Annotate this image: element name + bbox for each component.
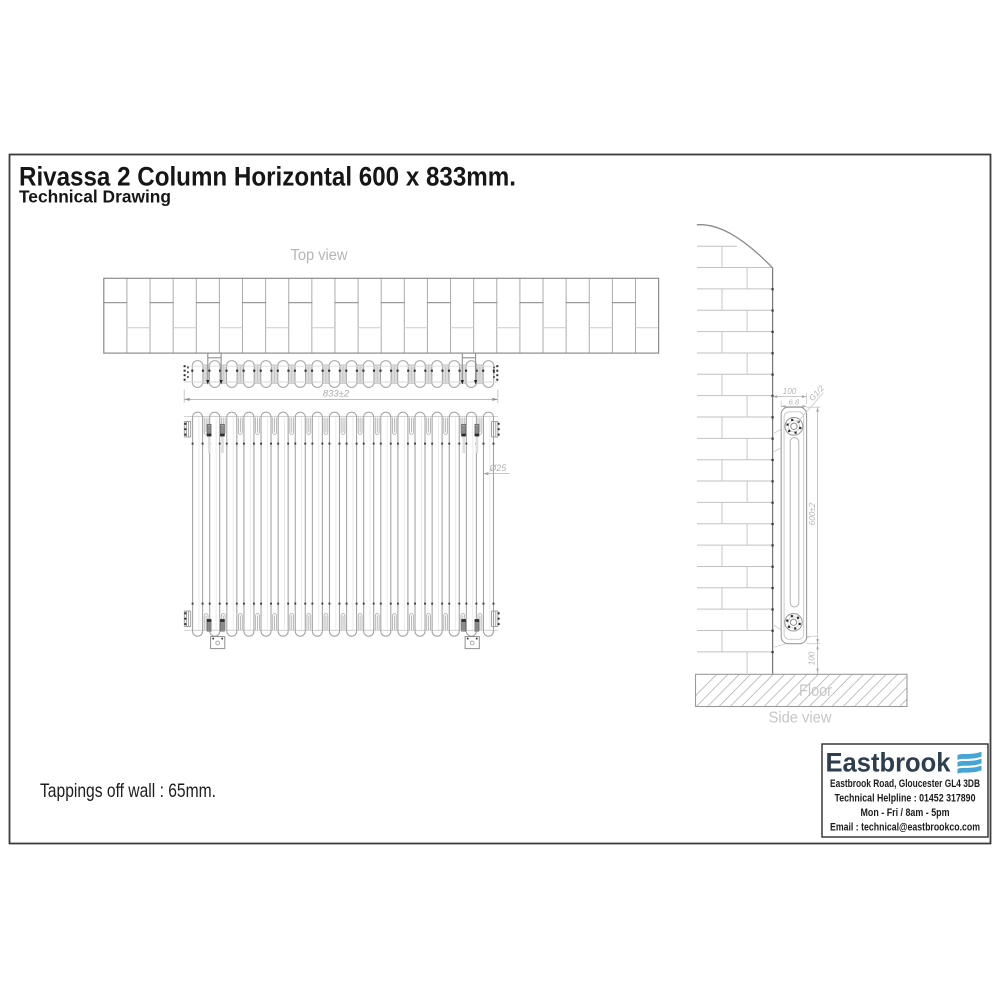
svg-text:Mon - Fri / 8am - 5pm: Mon - Fri / 8am - 5pm (861, 807, 950, 819)
svg-text:Eastbrook Road, Gloucester GL4: Eastbrook Road, Gloucester GL4 3DB (830, 778, 980, 790)
svg-text:600±2: 600±2 (808, 502, 817, 525)
svg-text:Technical Drawing: Technical Drawing (19, 187, 171, 207)
svg-text:6.8: 6.8 (789, 397, 800, 406)
svg-text:Ø25: Ø25 (489, 463, 507, 473)
svg-text:Eastbrook: Eastbrook (826, 748, 952, 778)
svg-text:100: 100 (783, 387, 797, 396)
svg-text:Side view: Side view (769, 710, 833, 727)
svg-text:Technical Helpline : 01452 317: Technical Helpline : 01452 317890 (835, 793, 976, 805)
svg-text:100: 100 (808, 651, 817, 665)
svg-text:833±2: 833±2 (323, 389, 350, 400)
svg-text:Email : technical@eastbrookco.: Email : technical@eastbrookco.com (830, 822, 980, 834)
svg-text:Tappings off wall : 65mm.: Tappings off wall : 65mm. (40, 780, 216, 802)
svg-text:Floor: Floor (799, 682, 832, 700)
svg-text:Top view: Top view (291, 247, 349, 264)
